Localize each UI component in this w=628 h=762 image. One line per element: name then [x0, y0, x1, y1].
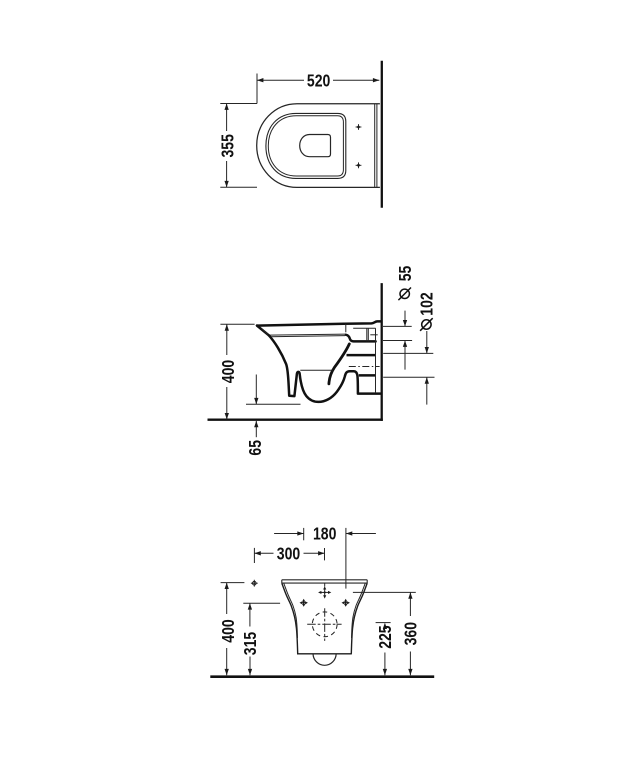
- svg-text:400: 400: [218, 619, 238, 642]
- svg-text:300: 300: [277, 544, 300, 564]
- svg-text:102: 102: [417, 292, 437, 315]
- svg-text:315: 315: [240, 632, 260, 655]
- svg-text:355: 355: [218, 134, 238, 157]
- svg-text:400: 400: [218, 360, 238, 383]
- svg-text:520: 520: [307, 71, 330, 91]
- svg-text:180: 180: [313, 524, 336, 544]
- svg-text:225: 225: [375, 625, 395, 648]
- svg-text:65: 65: [245, 440, 265, 456]
- svg-text:55: 55: [395, 266, 415, 282]
- svg-text:360: 360: [401, 622, 421, 645]
